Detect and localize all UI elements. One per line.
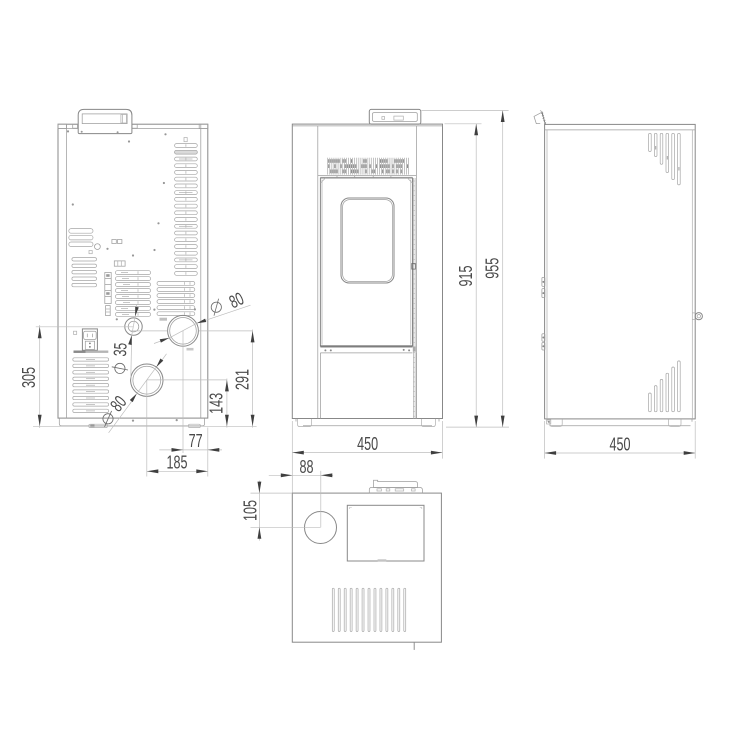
svg-text:450: 450 [357, 435, 378, 455]
svg-text:450: 450 [610, 435, 631, 455]
svg-text:88: 88 [300, 458, 314, 478]
svg-text:305: 305 [20, 367, 40, 388]
svg-text:185: 185 [167, 453, 188, 473]
svg-text:955: 955 [483, 258, 503, 279]
svg-text:915: 915 [457, 265, 477, 286]
svg-text:35: 35 [111, 342, 132, 357]
svg-text:291: 291 [233, 369, 253, 390]
svg-text:105: 105 [241, 500, 261, 521]
svg-text:77: 77 [189, 432, 203, 452]
svg-text:143: 143 [207, 393, 227, 414]
